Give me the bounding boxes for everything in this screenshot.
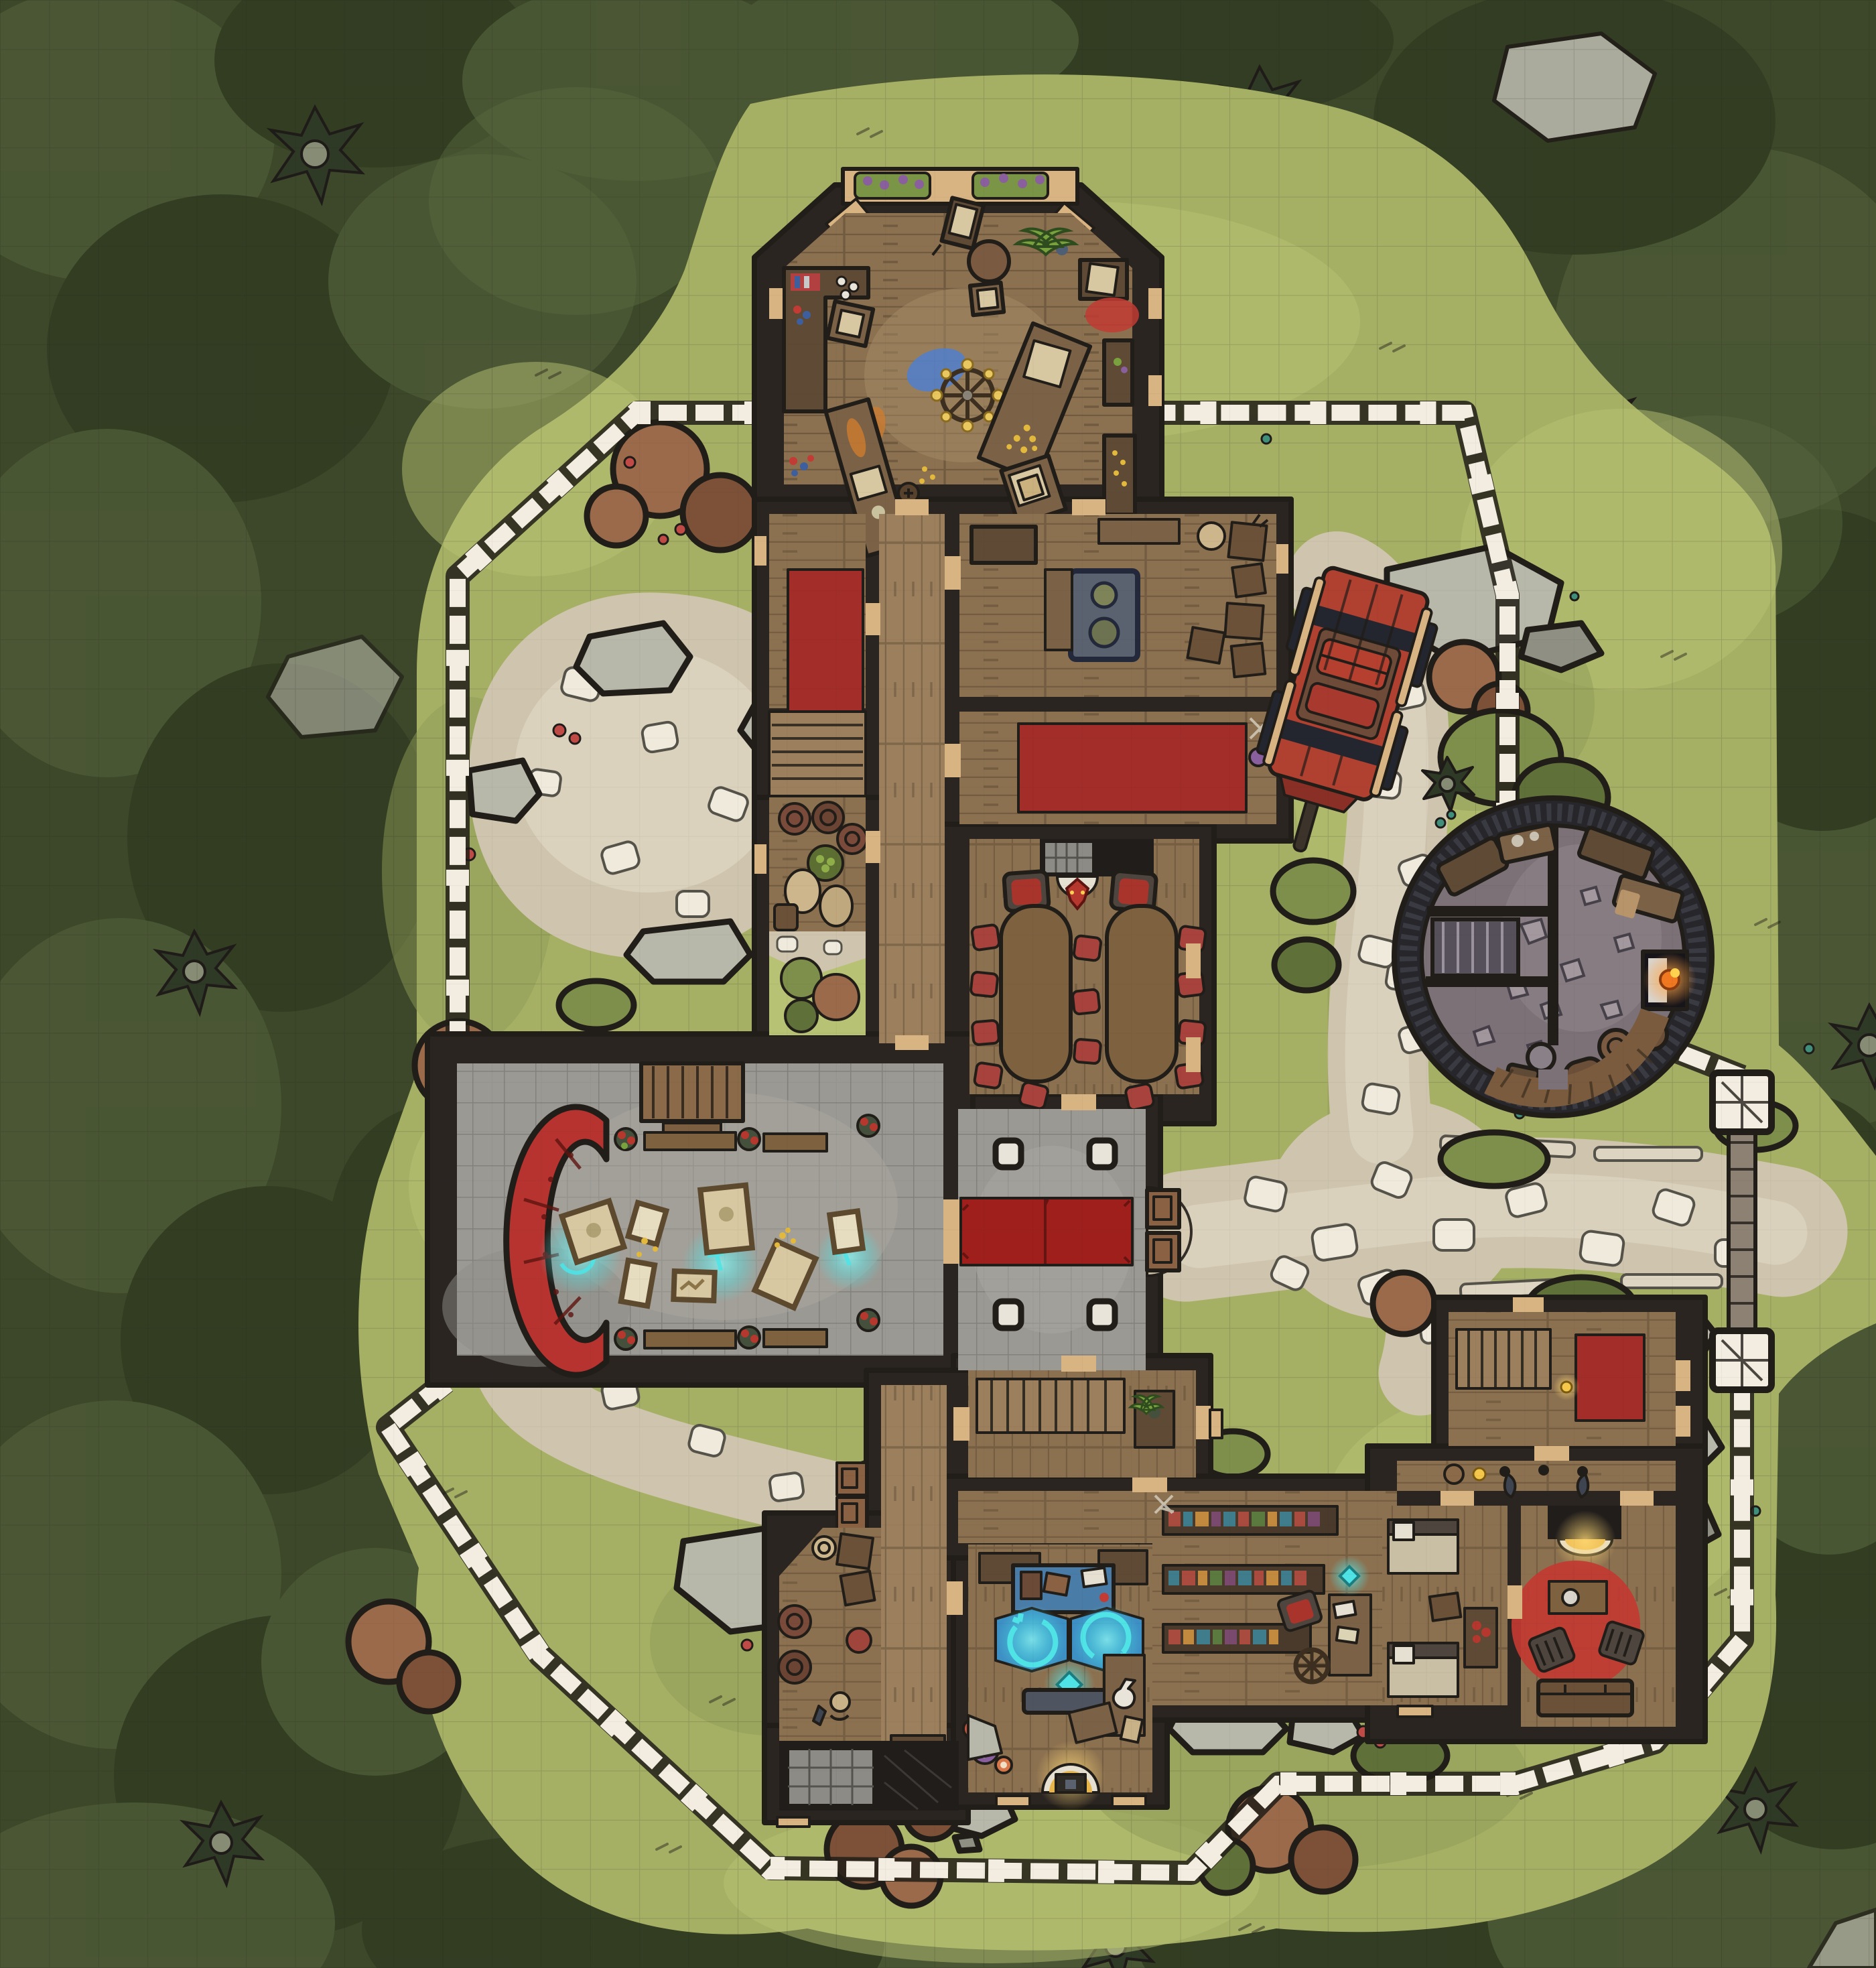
grid-overlay [0,0,1876,1968]
map-canvas [0,0,1876,1968]
battle-map [0,0,1876,1968]
